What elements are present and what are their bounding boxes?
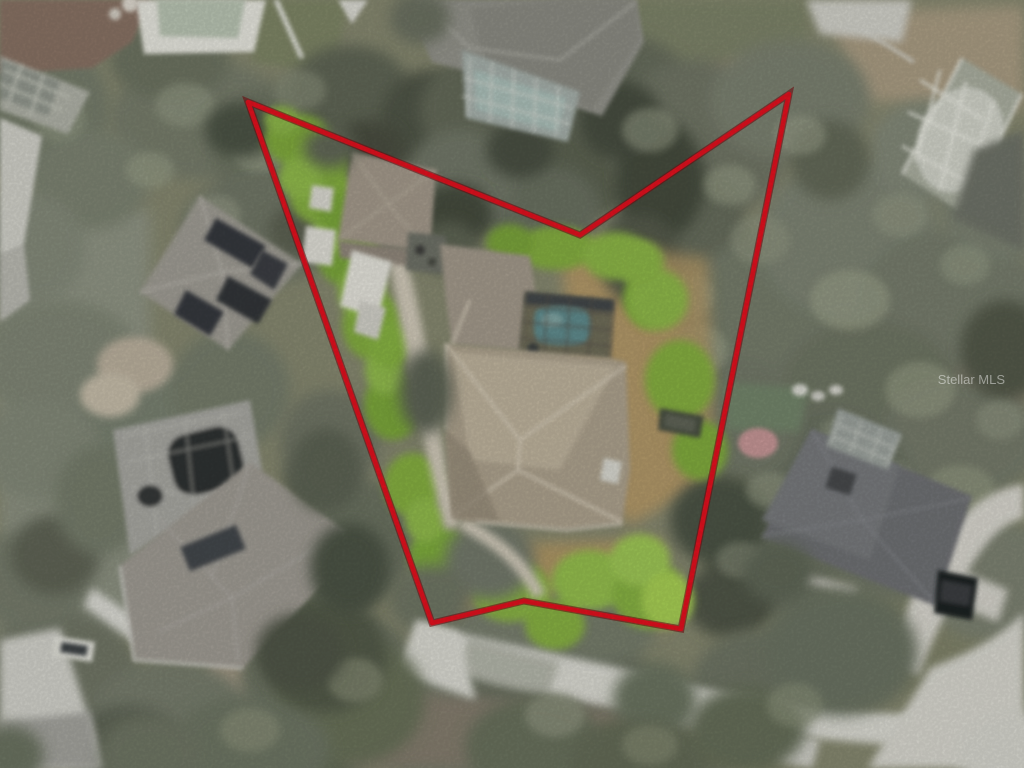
svg-text:Stellar MLS: Stellar MLS — [938, 372, 1006, 387]
